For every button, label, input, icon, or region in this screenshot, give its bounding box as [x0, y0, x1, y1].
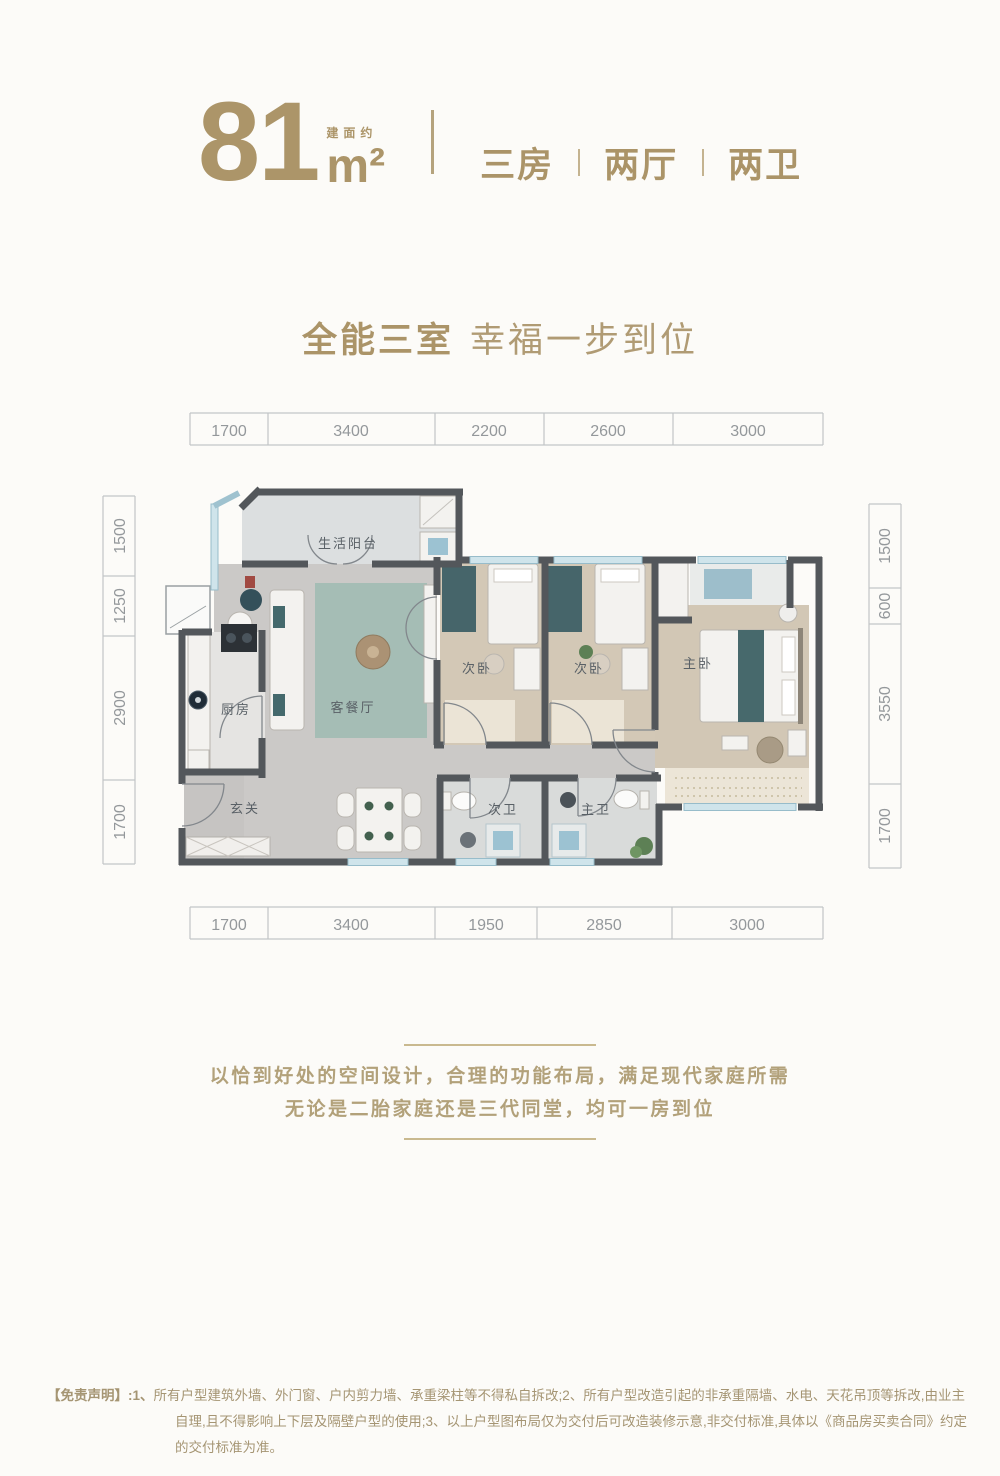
area-prefix: 建面约 — [326, 124, 377, 141]
dim-top-2: 3400 — [333, 423, 369, 440]
spec-baths: 两卫 — [728, 137, 802, 188]
sofa — [270, 590, 304, 730]
master-baywindow-south — [665, 768, 809, 804]
entry-cabinet — [186, 837, 270, 856]
floor-plan-svg: 1700 3400 2200 2600 3000 1700 3400 1950 … — [90, 400, 930, 960]
dim-left-2: 1250 — [112, 588, 129, 624]
description-rule-bottom — [404, 1138, 596, 1140]
dim-bottom-3: 1950 — [468, 917, 504, 934]
spec-separator — [578, 149, 580, 176]
dining-window — [348, 859, 408, 866]
dim-top-5: 3000 — [730, 423, 766, 440]
dim-top: 1700 3400 2200 2600 3000 — [190, 413, 823, 445]
description-block: 以恰到好处的空间设计，合理的功能布局，满足现代家庭所需 无论是二胎家庭还是三代同… — [0, 1044, 1000, 1140]
label-balcony: 生活阳台 — [318, 536, 378, 551]
label-bath2: 次卫 — [488, 802, 518, 817]
floor-plan: 1700 3400 2200 2600 3000 1700 3400 1950 … — [90, 400, 930, 960]
label-entry: 玄关 — [230, 801, 260, 816]
disclaimer-label: 【免责声明】:1、 — [47, 1383, 154, 1409]
label-master: 主卧 — [683, 656, 713, 671]
master-north-window — [698, 557, 786, 564]
dim-right-2: 600 — [877, 593, 894, 620]
dim-left: 1500 1250 2900 1700 — [103, 496, 135, 864]
title-part1: 全能三室 — [302, 321, 454, 360]
corridor-floor — [437, 745, 655, 778]
dim-bottom-4: 2850 — [586, 917, 622, 934]
area-group: 81 建面约 m² — [198, 94, 385, 190]
dim-top-4: 2600 — [590, 423, 626, 440]
dim-left-3: 2900 — [112, 690, 129, 726]
title-part2: 幸福一步到位 — [470, 321, 698, 360]
disclaimer: 【免责声明】:1、所有户型建筑外墙、外门窗、户内剪力墙、承重梁柱等不得私自拆改;… — [47, 1383, 967, 1461]
description-rule-top — [404, 1044, 596, 1046]
bed-foot-mat-a — [445, 700, 515, 743]
header-divider — [431, 110, 434, 174]
washing-machine — [428, 538, 448, 555]
label-bathmaster: 主卫 — [581, 802, 611, 817]
area-unit-column: 建面约 m² — [326, 124, 385, 190]
dim-bottom-5: 3000 — [729, 917, 765, 934]
living-west-window — [211, 504, 218, 590]
disclaimer-line-1: 所有户型建筑外墙、外门窗、户内剪力墙、承重梁柱等不得私自拆改;2、所有户型改造引… — [154, 1383, 966, 1409]
coffee-table — [356, 635, 390, 669]
baywindow-mat — [704, 569, 752, 599]
disclaimer-line-2: 自理,且不得影响上下层及隔壁户型的使用;3、以上户型图布局仅为交付后可改造装修示… — [175, 1409, 967, 1435]
bathmaster-window — [550, 859, 594, 866]
description-line-1: 以恰到好处的空间设计，合理的功能布局，满足现代家庭所需 — [0, 1060, 1000, 1093]
dim-top-1: 1700 — [211, 423, 247, 440]
dim-bottom-1: 1700 — [211, 917, 247, 934]
label-kitchen: 厨房 — [221, 702, 251, 717]
label-bedroom2b: 次卧 — [574, 661, 604, 676]
utility-platform — [166, 586, 210, 634]
dim-left-4: 1700 — [112, 804, 129, 840]
bedroom2a-window — [470, 557, 538, 564]
bath2-window — [456, 859, 496, 866]
page-title: 全能三室幸福一步到位 — [0, 312, 1000, 363]
dim-right-4: 1700 — [877, 808, 894, 844]
dim-right-1: 1500 — [877, 528, 894, 564]
area-unit: m² — [326, 145, 385, 188]
label-bedroom2a: 次卧 — [462, 661, 492, 676]
disclaimer-line-3: 的交付标准为准。 — [175, 1435, 967, 1461]
spec-separator — [702, 149, 704, 176]
bedroom2b-window — [554, 557, 642, 564]
area-value: 81 — [198, 94, 319, 190]
spec-halls: 两厅 — [604, 137, 678, 188]
dim-right-3: 3550 — [877, 686, 894, 722]
dim-right: 1500 600 3550 1700 — [869, 504, 901, 868]
dim-top-3: 2200 — [471, 423, 507, 440]
dim-bottom-2: 3400 — [333, 917, 369, 934]
label-living: 客餐厅 — [330, 700, 375, 715]
spec-rooms: 三房 — [480, 137, 554, 188]
balcony-corner-window — [214, 493, 239, 506]
dim-bottom: 1700 3400 1950 2850 3000 — [190, 907, 823, 939]
master-south-window — [684, 804, 796, 811]
dim-left-1: 1500 — [112, 518, 129, 554]
description-line-2: 无论是二胎家庭还是三代同堂，均可一房到位 — [0, 1093, 1000, 1126]
spec-list: 三房 两厅 两卫 — [480, 137, 802, 188]
header: 81 建面约 m² 三房 两厅 两卫 — [0, 94, 1000, 190]
